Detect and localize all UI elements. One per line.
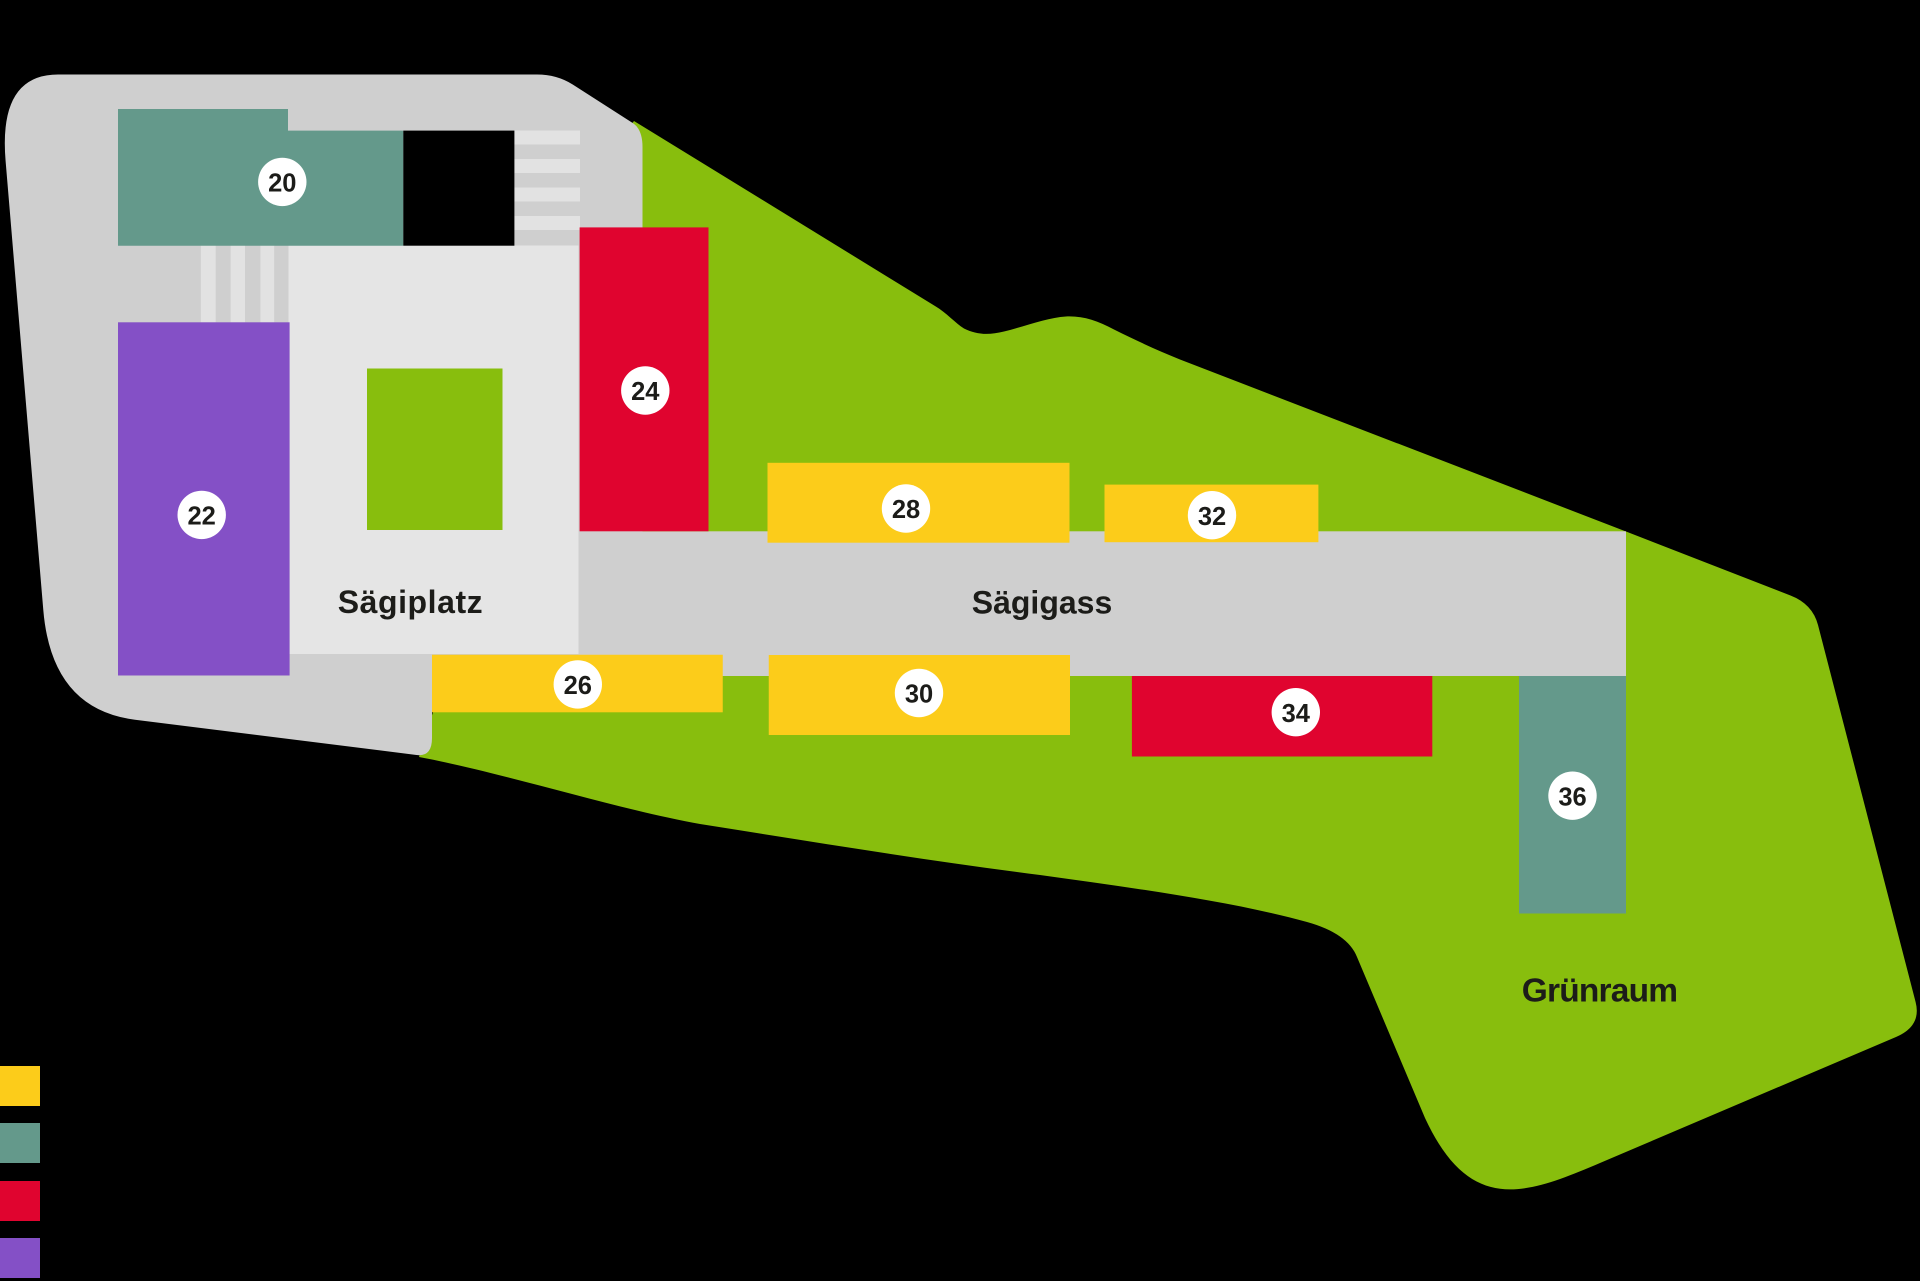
svg-text:Grünraum: Grünraum [1522,973,1678,1010]
svg-text:32: 32 [1198,503,1226,531]
svg-text:36: 36 [1558,783,1586,811]
svg-text:Sägigass: Sägigass [972,585,1113,621]
svg-text:30: 30 [905,681,933,709]
svg-text:24: 24 [631,378,660,406]
svg-text:28: 28 [892,496,920,524]
svg-text:34: 34 [1282,700,1311,728]
svg-text:26: 26 [564,672,592,700]
svg-text:Sägiplatz: Sägiplatz [338,584,483,620]
svg-text:22: 22 [188,503,216,531]
svg-text:20: 20 [268,170,296,198]
